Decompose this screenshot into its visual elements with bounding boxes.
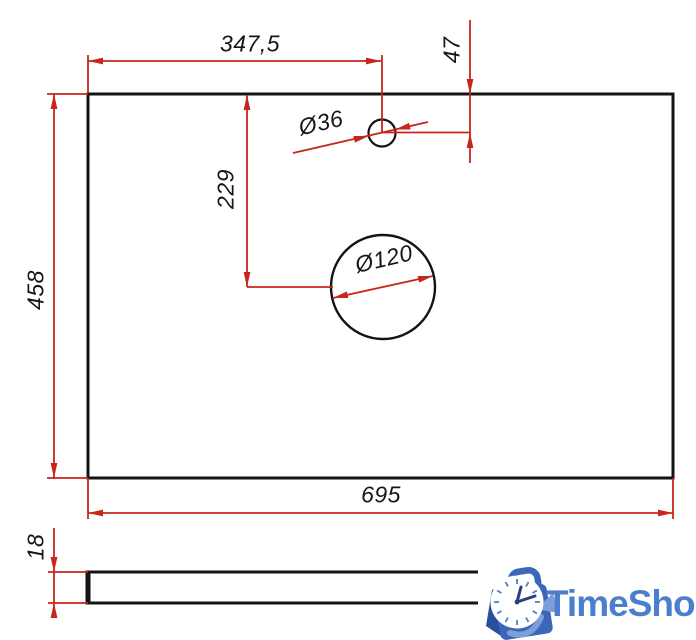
panel-top-view: [88, 94, 673, 478]
technical-drawing-sheet: 347,5 47 Ø36 229 Ø120 458 695 18: [0, 0, 696, 640]
dim-label-panel-width: 695: [361, 484, 401, 507]
dim-label-large-hole-offset-y: 229: [215, 169, 238, 209]
dim-label-panel-thickness: 18: [25, 534, 48, 561]
drawing-geometry: [0, 0, 696, 640]
panel-side-view: [88, 571, 478, 605]
dimension-lines: [47, 20, 673, 618]
panel-outline: [88, 94, 673, 478]
dim-label-hole-offset-y: 47: [441, 37, 464, 64]
timeshop-logo-text: TimeShop: [546, 585, 696, 622]
dim-label-hole-offset-x: 347,5: [220, 33, 280, 56]
dim-label-panel-height: 458: [25, 270, 48, 310]
